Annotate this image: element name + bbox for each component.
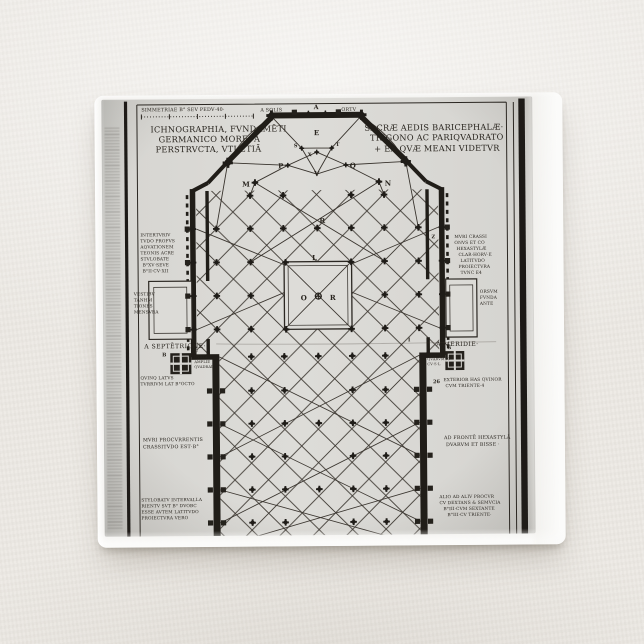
- square-button-product[interactable]: SIMMETRIAE B° SEV PEDV·40· A SOLIS A ORT…: [94, 92, 566, 548]
- print-vignette: [101, 96, 535, 536]
- cathedral-plan-engraving: SIMMETRIAE B° SEV PEDV·40· A SOLIS A ORT…: [94, 92, 566, 548]
- product-photo-backdrop: SIMMETRIAE B° SEV PEDV·40· A SOLIS A ORT…: [0, 0, 644, 644]
